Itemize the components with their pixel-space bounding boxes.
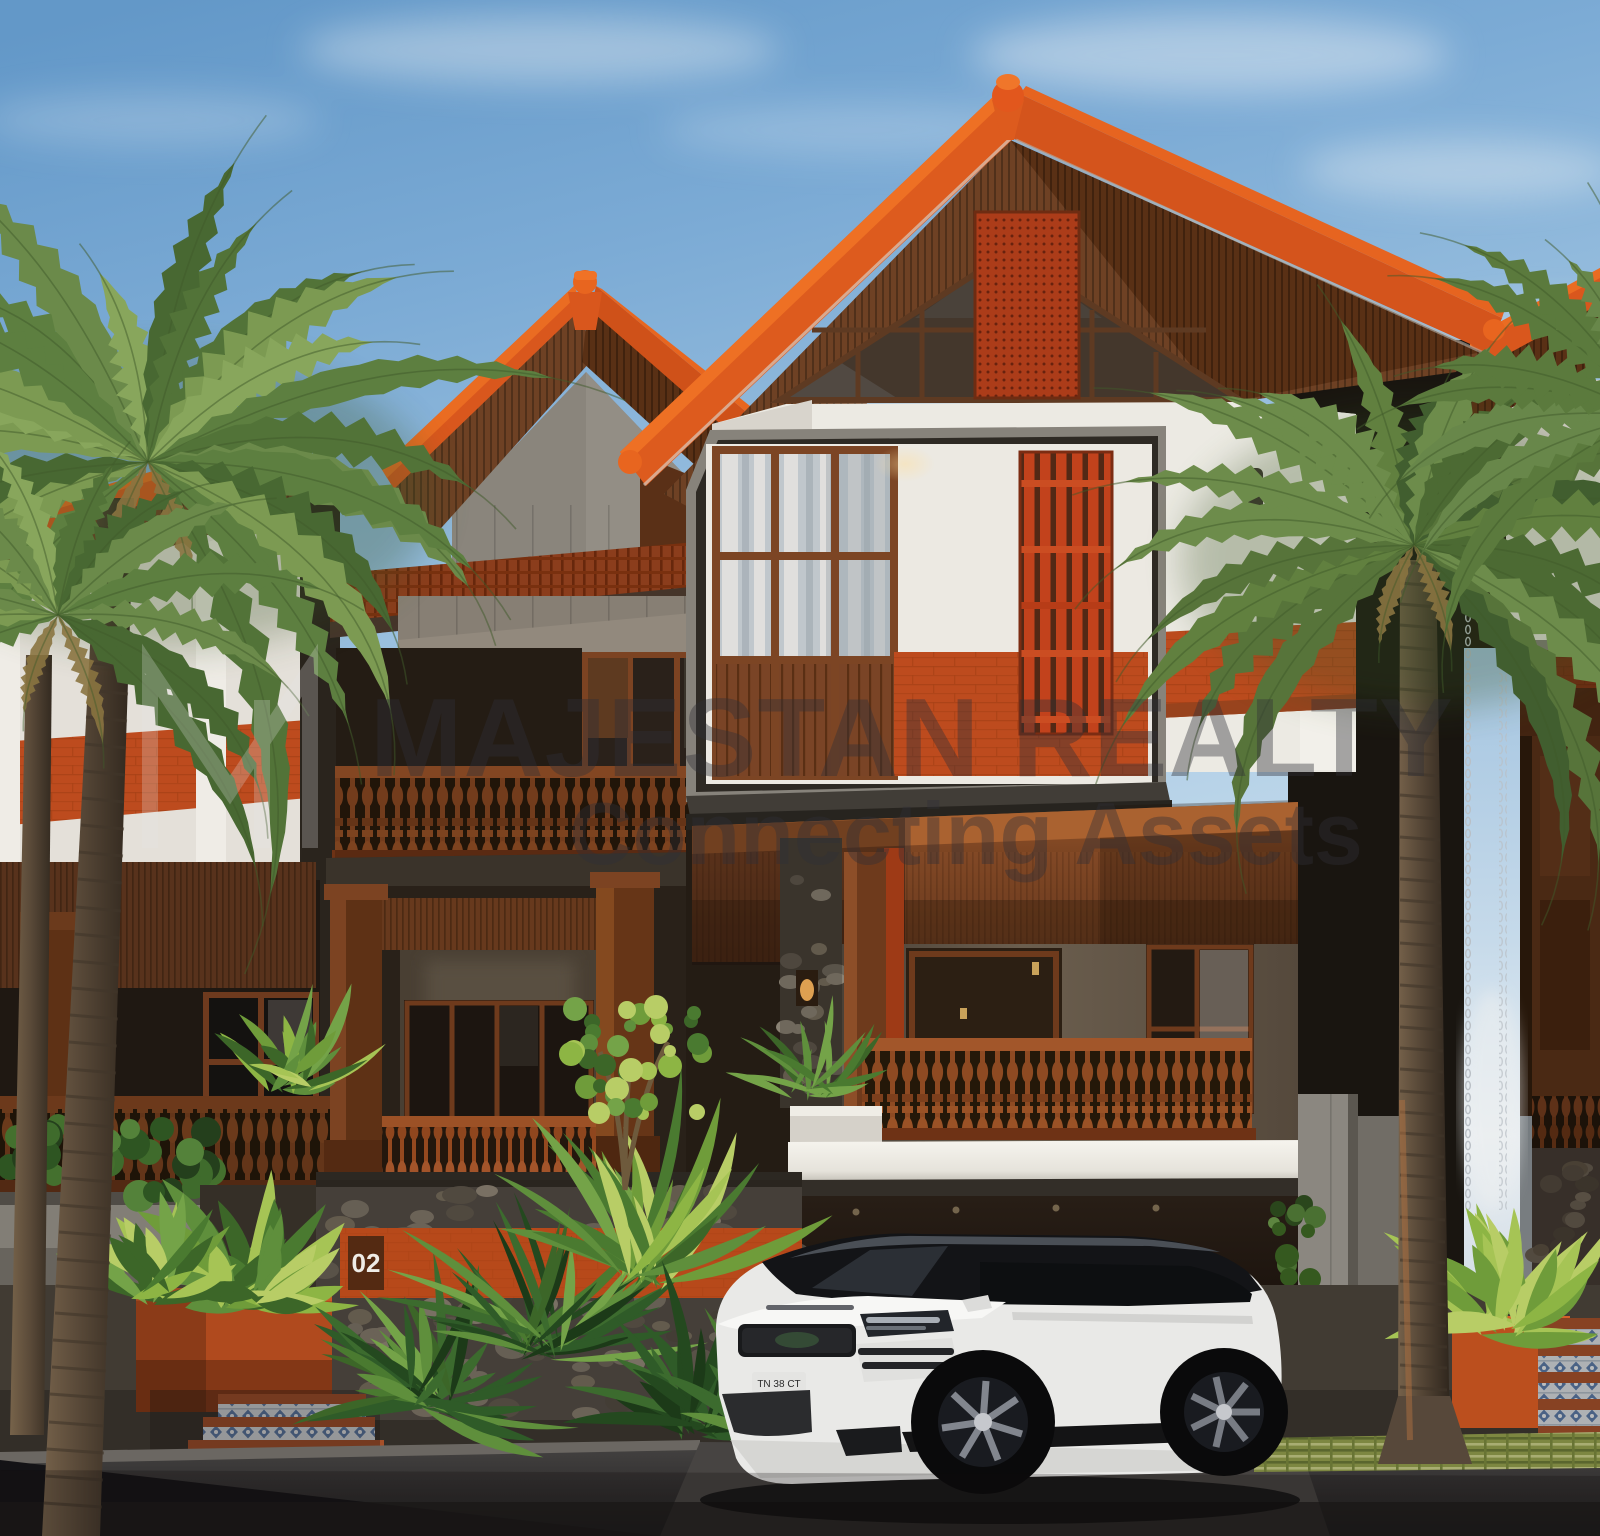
svg-text:Connecting Assets: Connecting Assets [569,784,1363,883]
svg-text:02: 02 [352,1248,381,1278]
svg-text:MAJESTAN REALTY: MAJESTAN REALTY [370,676,1454,800]
svg-text:TN 38 CT: TN 38 CT [757,1379,800,1390]
